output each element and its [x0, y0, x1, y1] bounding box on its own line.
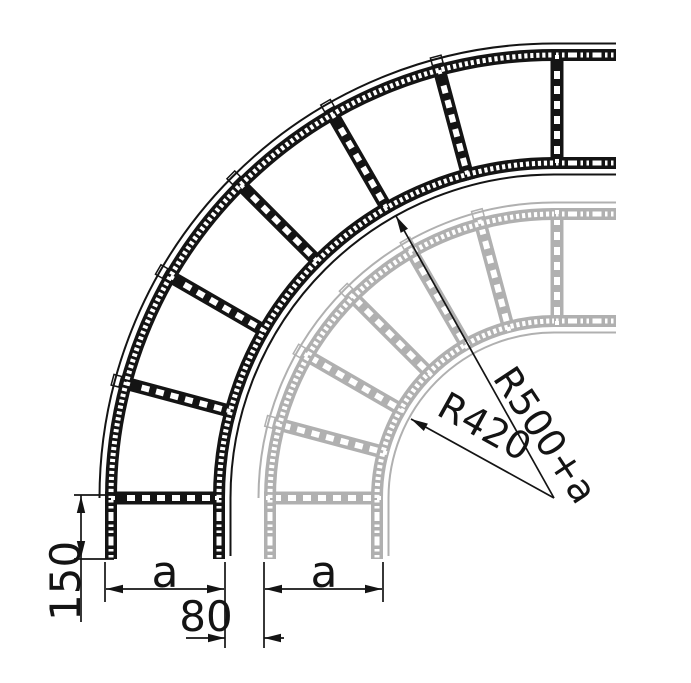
- arrowhead-r420: [409, 415, 428, 431]
- arrowhead-a1-left: [106, 585, 123, 593]
- dim-text-width-gray: a: [311, 547, 338, 598]
- dim-text-150: 150: [41, 541, 90, 621]
- arrowhead-150-up: [77, 496, 85, 513]
- dim-text-width-dark: a: [152, 547, 179, 598]
- technical-drawing-page: 150 a a 80 R500+a R420: [0, 0, 691, 683]
- arrowhead-80-right: [264, 634, 281, 642]
- cable-ladder-bend-drawing: 150 a a 80 R500+a R420: [0, 0, 691, 683]
- arrowhead-a2-right: [365, 585, 382, 593]
- dim-text-80: 80: [179, 592, 232, 641]
- arrowhead-a2-left: [265, 585, 282, 593]
